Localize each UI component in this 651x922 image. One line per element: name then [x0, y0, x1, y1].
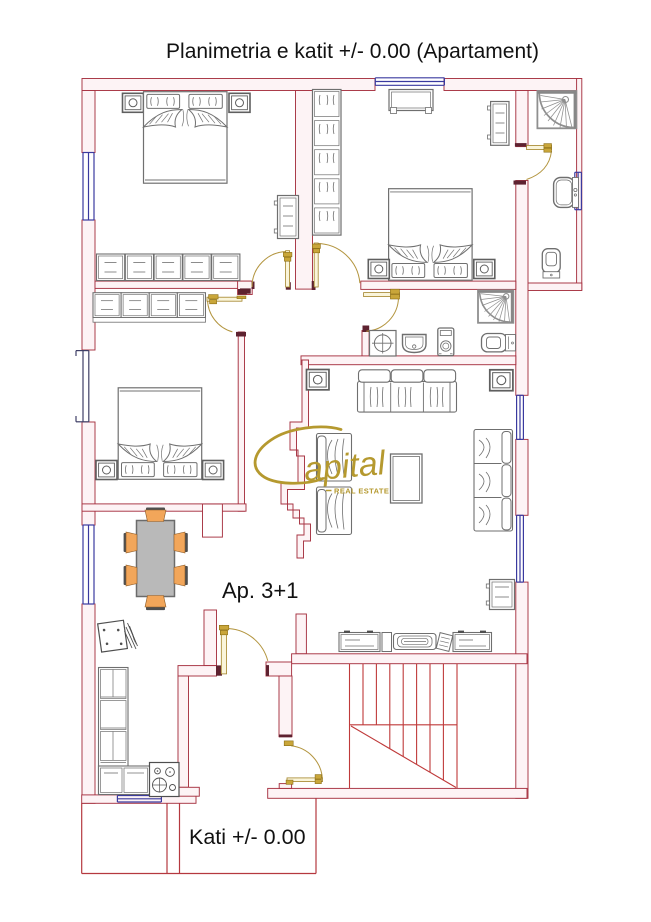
svg-text:Kati +/- 0.00: Kati +/- 0.00 [189, 825, 306, 849]
svg-text:Ap. 3+1: Ap. 3+1 [222, 578, 298, 603]
svg-text:REAL ESTATE: REAL ESTATE [334, 487, 389, 496]
svg-text:Planimetria e katit +/- 0.00 (: Planimetria e katit +/- 0.00 (Apartament… [166, 40, 539, 63]
svg-text:apital: apital [302, 444, 388, 489]
